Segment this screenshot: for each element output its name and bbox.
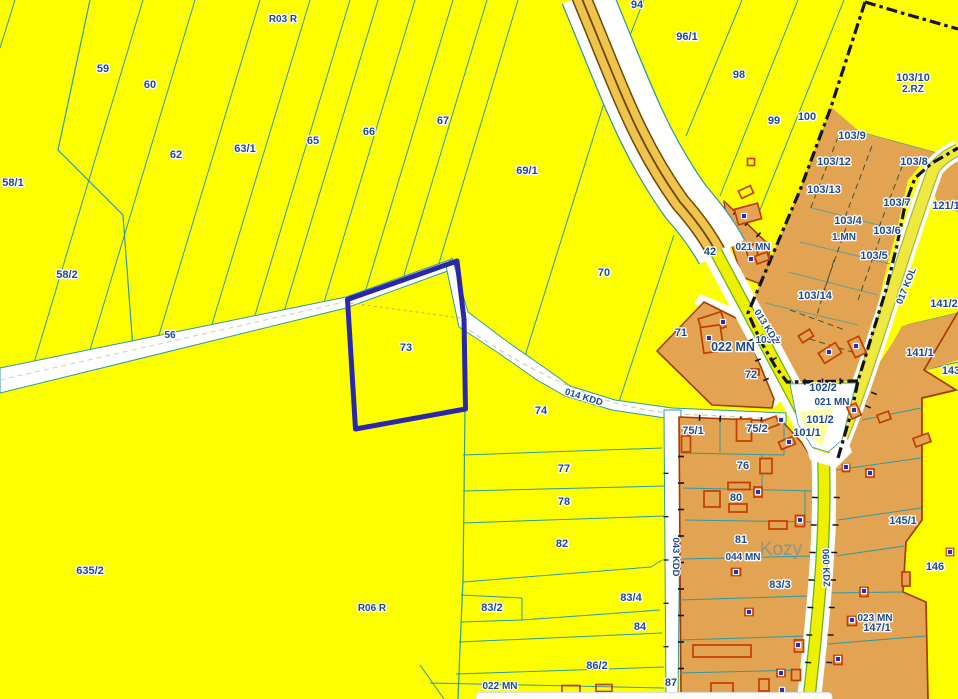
- svg-text:044 MN: 044 MN: [725, 552, 760, 563]
- svg-text:82: 82: [556, 538, 568, 550]
- svg-text:69/1: 69/1: [516, 165, 537, 177]
- svg-text:060 KDZ: 060 KDZ: [819, 549, 831, 588]
- svg-text:103/12: 103/12: [817, 156, 851, 168]
- svg-text:121/1: 121/1: [932, 200, 958, 212]
- svg-text:60: 60: [144, 79, 156, 91]
- svg-text:76: 76: [737, 460, 749, 472]
- svg-text:75/2: 75/2: [746, 423, 767, 435]
- svg-text:103/4: 103/4: [834, 215, 862, 227]
- svg-text:65: 65: [307, 135, 319, 147]
- svg-text:83/4: 83/4: [620, 592, 642, 604]
- svg-text:66: 66: [363, 126, 375, 138]
- svg-text:100: 100: [798, 111, 816, 123]
- svg-text:71: 71: [675, 327, 687, 339]
- svg-text:103/7: 103/7: [883, 197, 911, 209]
- svg-text:102/2: 102/2: [809, 382, 837, 394]
- svg-text:78: 78: [558, 496, 570, 508]
- svg-text:R03 R: R03 R: [269, 14, 298, 25]
- svg-text:70: 70: [598, 267, 610, 279]
- svg-text:R06 R: R06 R: [358, 603, 387, 614]
- svg-text:59: 59: [97, 63, 109, 75]
- svg-text:103/14: 103/14: [798, 290, 833, 302]
- svg-text:141/2: 141/2: [930, 298, 958, 310]
- svg-text:84: 84: [634, 621, 647, 633]
- svg-text:2.RZ: 2.RZ: [902, 84, 924, 95]
- svg-text:103/9: 103/9: [838, 130, 866, 142]
- svg-text:103/6: 103/6: [873, 225, 901, 237]
- svg-text:81: 81: [735, 534, 747, 546]
- svg-text:98: 98: [733, 69, 745, 81]
- svg-text:74: 74: [535, 405, 548, 417]
- svg-text:86/2: 86/2: [586, 660, 607, 672]
- svg-text:143: 143: [942, 365, 958, 377]
- svg-text:103/5: 103/5: [860, 250, 888, 262]
- svg-text:75/1: 75/1: [682, 425, 703, 437]
- svg-text:96/1: 96/1: [676, 31, 697, 43]
- svg-text:58/2: 58/2: [56, 269, 77, 281]
- svg-text:67: 67: [437, 115, 449, 127]
- svg-text:58/1: 58/1: [2, 177, 23, 189]
- svg-text:021 MN: 021 MN: [735, 242, 770, 253]
- svg-text:56: 56: [164, 330, 176, 341]
- svg-text:147/1: 147/1: [863, 622, 891, 634]
- svg-text:101/2: 101/2: [806, 414, 834, 426]
- svg-text:635/2: 635/2: [76, 565, 104, 577]
- svg-text:73: 73: [400, 342, 412, 354]
- svg-text:83/2: 83/2: [481, 602, 502, 614]
- svg-text:80: 80: [730, 492, 742, 504]
- svg-text:87: 87: [665, 677, 677, 689]
- svg-text:Kozy: Kozy: [760, 539, 803, 560]
- svg-text:103/13: 103/13: [807, 184, 841, 196]
- svg-text:103/8: 103/8: [900, 156, 928, 168]
- svg-text:99: 99: [768, 115, 780, 127]
- svg-text:022 MN: 022 MN: [482, 681, 517, 692]
- svg-text:103/10: 103/10: [896, 72, 930, 84]
- svg-text:77: 77: [558, 463, 570, 475]
- svg-text:94: 94: [631, 0, 644, 11]
- svg-text:043 KDD: 043 KDD: [670, 537, 681, 576]
- svg-text:141/1: 141/1: [906, 347, 934, 359]
- svg-text:101/1: 101/1: [793, 427, 821, 439]
- svg-text:72: 72: [745, 369, 757, 381]
- svg-text:63/1: 63/1: [234, 143, 255, 155]
- svg-text:83/3: 83/3: [769, 579, 790, 591]
- svg-text:1.MN: 1.MN: [832, 232, 856, 243]
- svg-text:146: 146: [926, 561, 944, 573]
- svg-text:42: 42: [704, 246, 716, 258]
- svg-text:62: 62: [170, 149, 182, 161]
- svg-text:021 MN: 021 MN: [814, 397, 849, 408]
- svg-text:022 MN: 022 MN: [711, 340, 755, 354]
- svg-text:145/1: 145/1: [889, 515, 917, 527]
